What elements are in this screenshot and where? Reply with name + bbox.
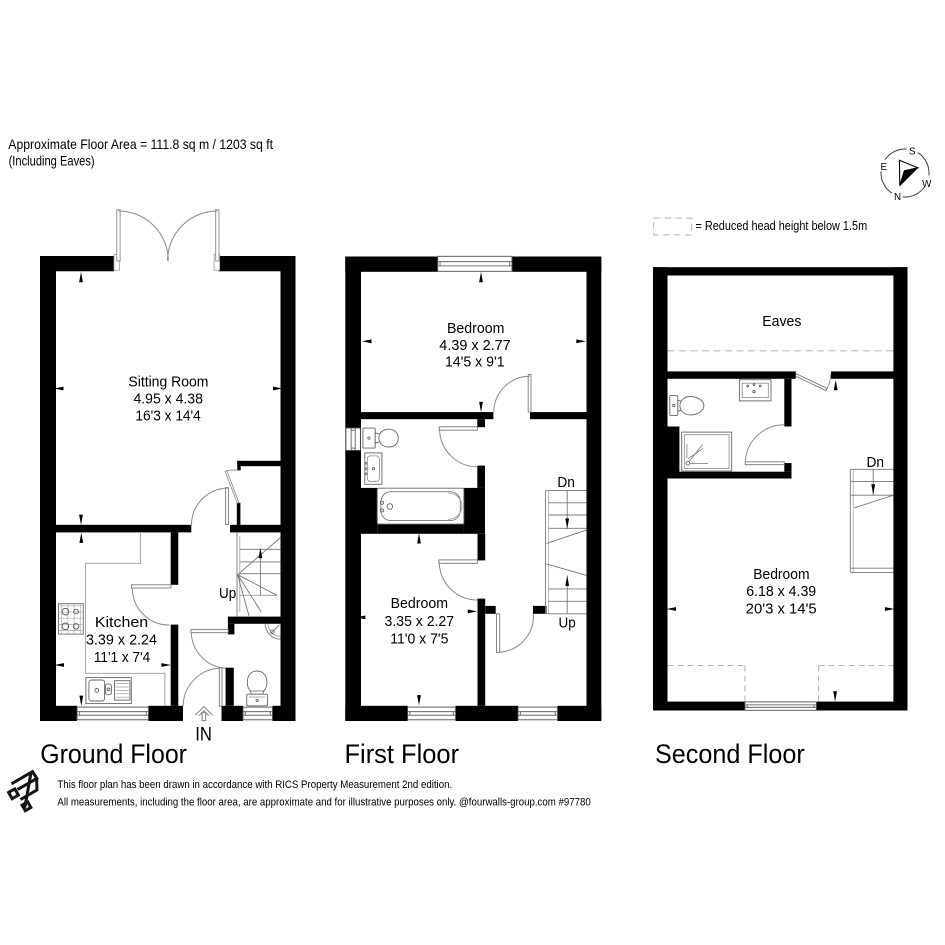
- svg-text:IN: IN: [195, 723, 212, 744]
- svg-text:This floor plan has been drawn: This floor plan has been drawn in accord…: [57, 780, 452, 791]
- svg-text:Approximate Floor Area = 111.8: Approximate Floor Area = 111.8 sq m / 12…: [8, 136, 273, 152]
- svg-text:Eaves: Eaves: [762, 314, 801, 330]
- svg-text:(Including Eaves): (Including Eaves): [9, 154, 95, 169]
- svg-text:= Reduced head height below 1.: = Reduced head height below 1.5m: [696, 218, 868, 233]
- svg-text:4.95 x 4.38: 4.95 x 4.38: [133, 392, 203, 408]
- svg-text:Dn: Dn: [557, 475, 575, 491]
- svg-text:Bedroom: Bedroom: [753, 567, 809, 583]
- svg-text:Bedroom: Bedroom: [447, 321, 504, 337]
- svg-text:14'5 x 9'1: 14'5 x 9'1: [445, 355, 505, 371]
- svg-text:W: W: [922, 179, 932, 190]
- svg-text:Up: Up: [219, 586, 236, 602]
- svg-text:3.39 x 2.24: 3.39 x 2.24: [86, 633, 157, 649]
- svg-text:3.35 x 2.27: 3.35 x 2.27: [385, 614, 455, 630]
- svg-text:Ground Floor: Ground Floor: [40, 738, 187, 769]
- svg-text:First Floor: First Floor: [345, 738, 460, 769]
- svg-text:11'1 x 7'4: 11'1 x 7'4: [94, 650, 150, 666]
- svg-text:Second Floor: Second Floor: [655, 738, 805, 769]
- svg-text:S: S: [909, 147, 916, 158]
- svg-text:Bedroom: Bedroom: [391, 596, 448, 612]
- svg-text:E: E: [881, 162, 888, 173]
- svg-text:All measurements, including th: All measurements, including the floor ar…: [57, 797, 591, 808]
- svg-text:4.39 x 2.77: 4.39 x 2.77: [439, 338, 510, 354]
- svg-text:N: N: [894, 192, 901, 203]
- svg-text:6.18 x 4.39: 6.18 x 4.39: [746, 584, 816, 600]
- svg-text:20'3 x 14'5: 20'3 x 14'5: [746, 602, 817, 618]
- svg-text:Dn: Dn: [867, 455, 885, 471]
- svg-text:11'0 x 7'5: 11'0 x 7'5: [390, 632, 448, 648]
- svg-text:Sitting Room: Sitting Room: [128, 375, 208, 391]
- svg-text:Kitchen: Kitchen: [95, 615, 148, 631]
- svg-text:Up: Up: [559, 615, 576, 631]
- svg-text:16'3 x 14'4: 16'3 x 14'4: [135, 409, 200, 425]
